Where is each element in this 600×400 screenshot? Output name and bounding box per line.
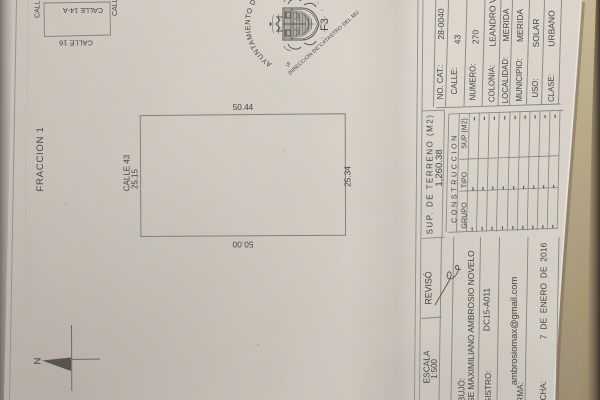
svg-text:DC15-A011: DC15-A011 <box>481 288 491 331</box>
svg-text:JOSE MAXIMILIANO AMBROSIO NOVE: JOSE MAXIMILIANO AMBROSIO NOVELO <box>466 250 476 400</box>
svg-text:NO. CAT.:: NO. CAT.: <box>436 65 445 100</box>
svg-text:REGISTRO:: REGISTRO: <box>484 370 493 400</box>
svg-text:FECHA:: FECHA: <box>539 381 548 400</box>
svg-text:28-0040: 28-0040 <box>436 8 446 39</box>
svg-text:50.00: 50.00 <box>232 239 253 249</box>
svg-text:CALLE 16: CALLE 16 <box>59 38 93 47</box>
svg-text:CALLE 14-A: CALLE 14-A <box>63 6 103 15</box>
svg-text:USO:: USO: <box>531 78 540 97</box>
svg-text:DIBUJÓ:: DIBUJÓ: <box>456 378 466 400</box>
svg-text:7 DE ENERO DE 2016: 7 DE ENERO DE 2016 <box>538 243 548 340</box>
svg-text:CONSTRUCCION: CONSTRUCCION <box>449 133 458 223</box>
svg-text:REVISÓ: REVISÓ <box>423 271 433 304</box>
svg-text:COLONIA:: COLONIA: <box>488 65 497 102</box>
svg-text:1:500: 1:500 <box>430 358 439 379</box>
svg-text:CALLE:: CALLE: <box>450 68 459 95</box>
svg-text:FRACCION 1: FRACCION 1 <box>35 126 46 191</box>
svg-text:MERIDA: MERIDA <box>515 9 525 42</box>
svg-text:CALLE 43: CALLE 43 <box>123 154 132 191</box>
svg-text:F3: F3 <box>319 18 331 31</box>
svg-text:CALLE 12: CALLE 12 <box>34 0 41 18</box>
svg-text:CLASE:: CLASE: <box>547 74 556 102</box>
svg-text:MUNICIPIO:: MUNICIPIO: <box>515 58 524 101</box>
svg-text:LOCALIDAD:: LOCALIDAD: <box>501 57 510 103</box>
svg-text:URBANO: URBANO <box>546 10 556 47</box>
svg-text:50.44: 50.44 <box>233 103 254 112</box>
svg-text:TIPO: TIPO <box>461 171 468 188</box>
svg-text:GRUPO: GRUPO <box>459 202 468 229</box>
svg-text:CALLE 10: CALLE 10 <box>112 0 119 16</box>
svg-text:MERIDA: MERIDA <box>501 8 511 41</box>
svg-text:25.15: 25.15 <box>131 168 140 189</box>
svg-text:SUP (M2): SUP (M2) <box>461 118 468 149</box>
svg-text:43: 43 <box>452 35 462 45</box>
svg-text:N: N <box>33 357 44 364</box>
svg-text:25.34: 25.34 <box>342 166 352 187</box>
svg-text:NUMERO:: NUMERO: <box>469 64 478 101</box>
svg-text:SOLAR: SOLAR <box>531 19 541 48</box>
svg-text:LEANDRO VALLE: LEANDRO VALLE <box>487 0 497 47</box>
svg-text:270: 270 <box>470 30 480 44</box>
svg-text:ambrosiomax@gmail.com: ambrosiomax@gmail.com <box>508 277 519 386</box>
